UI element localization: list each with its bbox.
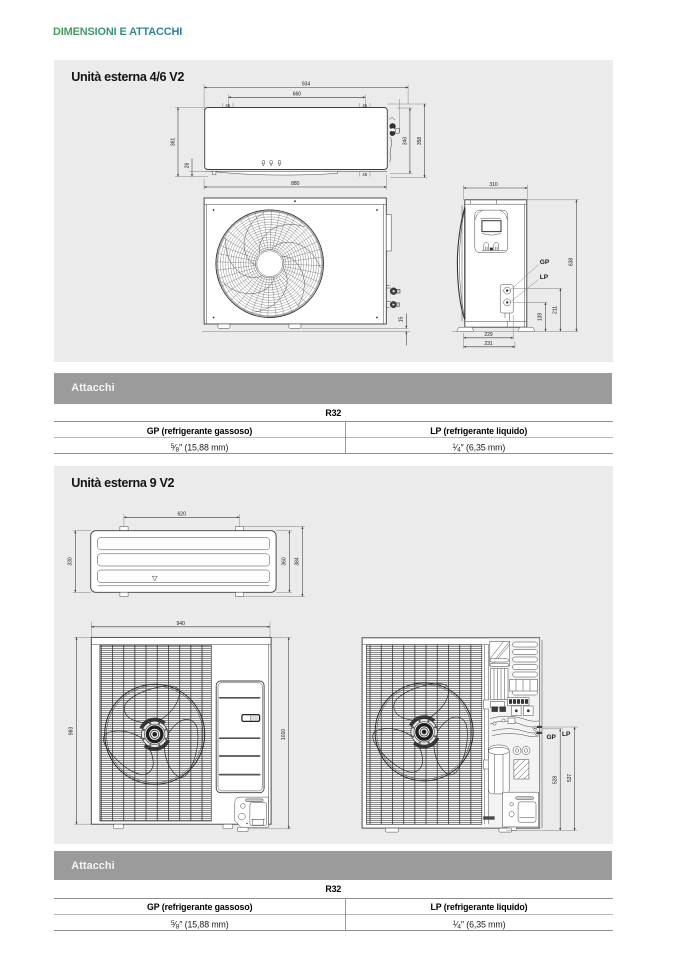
svg-text:880: 880 — [291, 181, 300, 187]
svg-text:45: 45 — [362, 172, 367, 177]
svg-text:45: 45 — [362, 103, 367, 108]
svg-text:15: 15 — [399, 317, 405, 323]
svg-text:358: 358 — [417, 137, 423, 146]
svg-text:384: 384 — [295, 557, 301, 566]
svg-text:211: 211 — [553, 306, 559, 314]
svg-text:139: 139 — [538, 313, 544, 322]
svg-text:229: 229 — [484, 332, 493, 338]
svg-text:361: 361 — [171, 138, 177, 147]
svg-text:LP: LP — [540, 274, 549, 281]
svg-text:528: 528 — [552, 776, 558, 785]
svg-text:940: 940 — [177, 621, 186, 627]
svg-text:45: 45 — [225, 103, 230, 108]
svg-text:934: 934 — [302, 82, 311, 88]
svg-text:26: 26 — [185, 163, 191, 169]
svg-text:231: 231 — [484, 341, 493, 347]
svg-text:1010: 1010 — [281, 729, 287, 740]
svg-text:360: 360 — [282, 557, 288, 566]
svg-text:340: 340 — [402, 137, 408, 146]
svg-text:620: 620 — [178, 511, 187, 517]
svg-text:GP: GP — [540, 259, 550, 266]
svg-text:310: 310 — [489, 182, 498, 188]
svg-text:LP: LP — [562, 731, 571, 738]
svg-text:GP: GP — [547, 734, 557, 741]
svg-text:638: 638 — [569, 258, 575, 267]
svg-text:330: 330 — [68, 557, 74, 566]
svg-text:983: 983 — [69, 727, 75, 736]
svg-text:537: 537 — [567, 774, 573, 783]
svg-text:660: 660 — [293, 91, 302, 97]
